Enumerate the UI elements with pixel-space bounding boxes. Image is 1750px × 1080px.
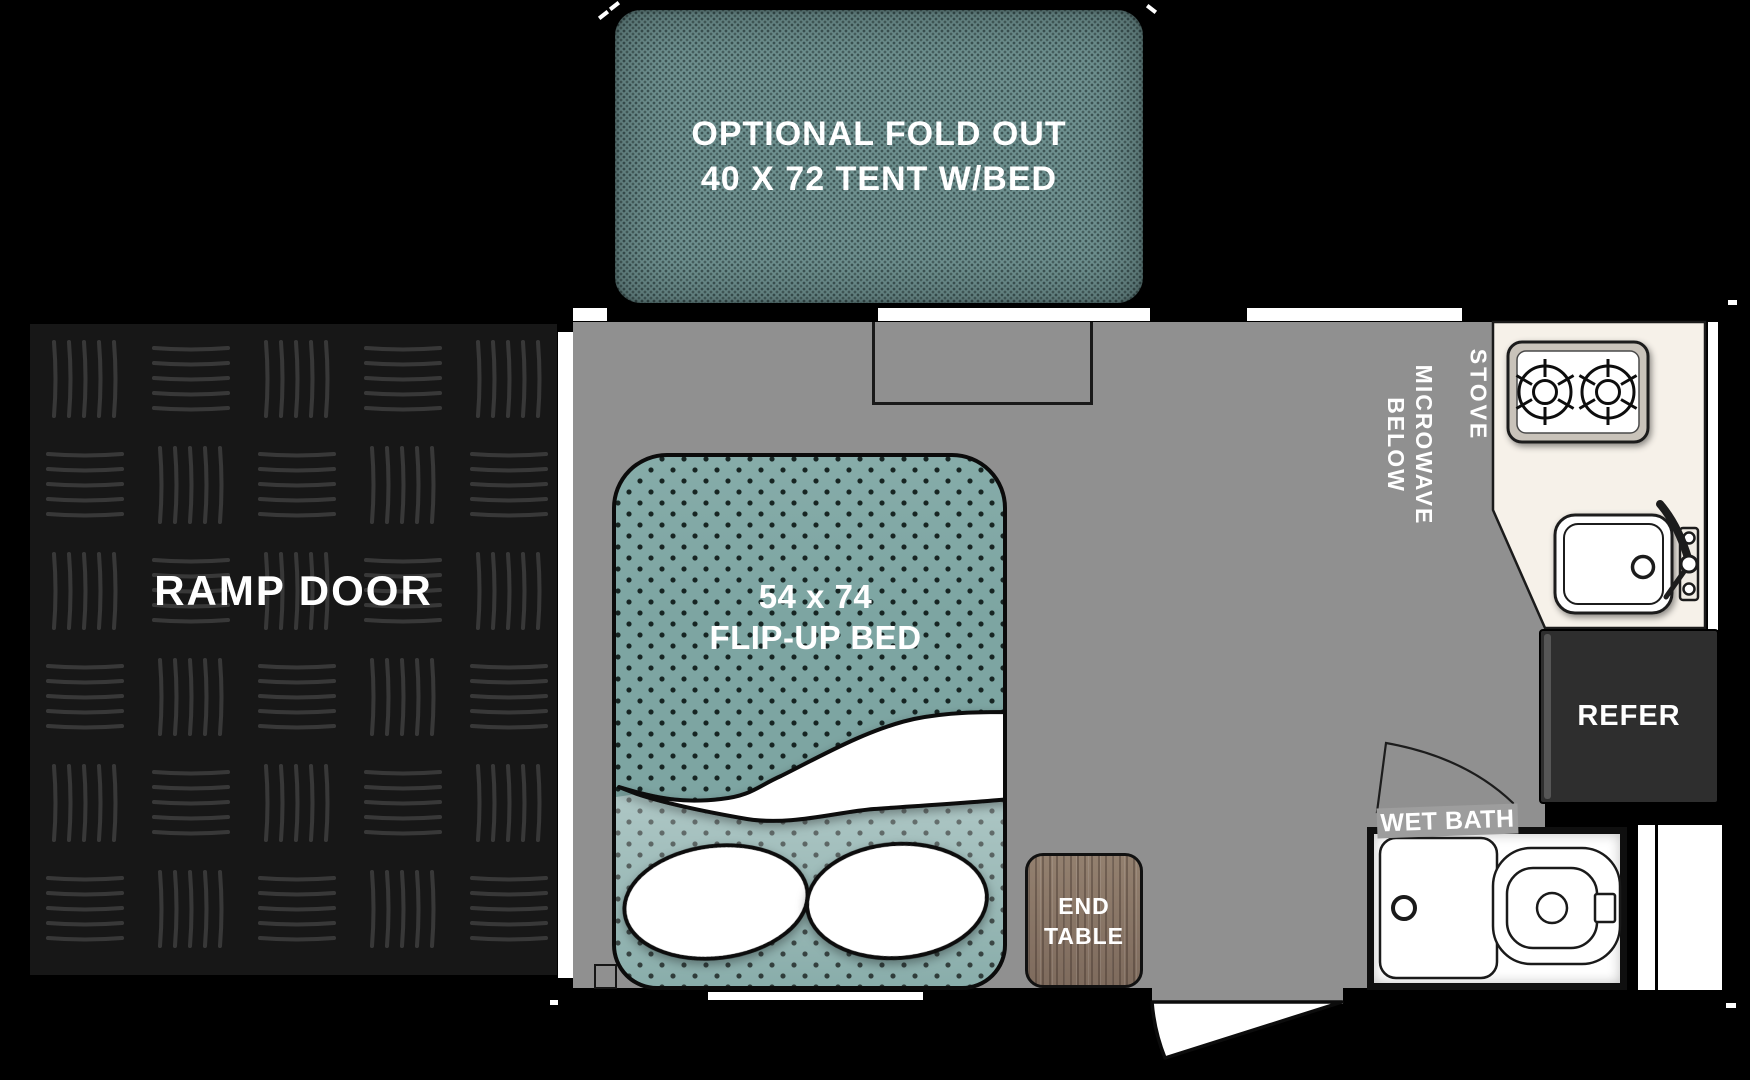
corner-marker-icon (1726, 1003, 1736, 1008)
floorplan-canvas: RAMP DOOR OPTIONAL FOLD OUT 40 X 72 TENT… (0, 0, 1750, 1080)
bed-label: 54 x 74 FLIP-UP BED (612, 576, 1007, 658)
flip-up-bed (612, 453, 1007, 990)
end-table: END TABLE (1025, 853, 1143, 988)
toilet-icon (1493, 848, 1620, 964)
corner-marker-icon (550, 1000, 558, 1005)
microwave-below-label: MICROWAVE BELOW (1382, 365, 1438, 526)
stove-label: STOVE (1465, 349, 1492, 442)
refrigerator-label: REFER (1540, 630, 1718, 803)
blanket-fold (619, 712, 1007, 821)
bed-label-line1: 54 x 74 (624, 576, 1007, 617)
end-table-label-line1: END (1058, 891, 1110, 921)
bed-label-line2: FLIP-UP BED (624, 617, 1007, 658)
wet-bath-label: WET BATH (1377, 804, 1519, 839)
microwave-label-line1: MICROWAVE (1410, 365, 1438, 526)
shower-pan-icon (1380, 838, 1497, 978)
corner-marker-icon (1728, 300, 1737, 305)
drain-icon (1393, 897, 1415, 919)
end-table-label-line2: TABLE (1044, 921, 1124, 951)
microwave-label-line2: BELOW (1382, 365, 1410, 526)
bed-graphics (616, 457, 1007, 990)
